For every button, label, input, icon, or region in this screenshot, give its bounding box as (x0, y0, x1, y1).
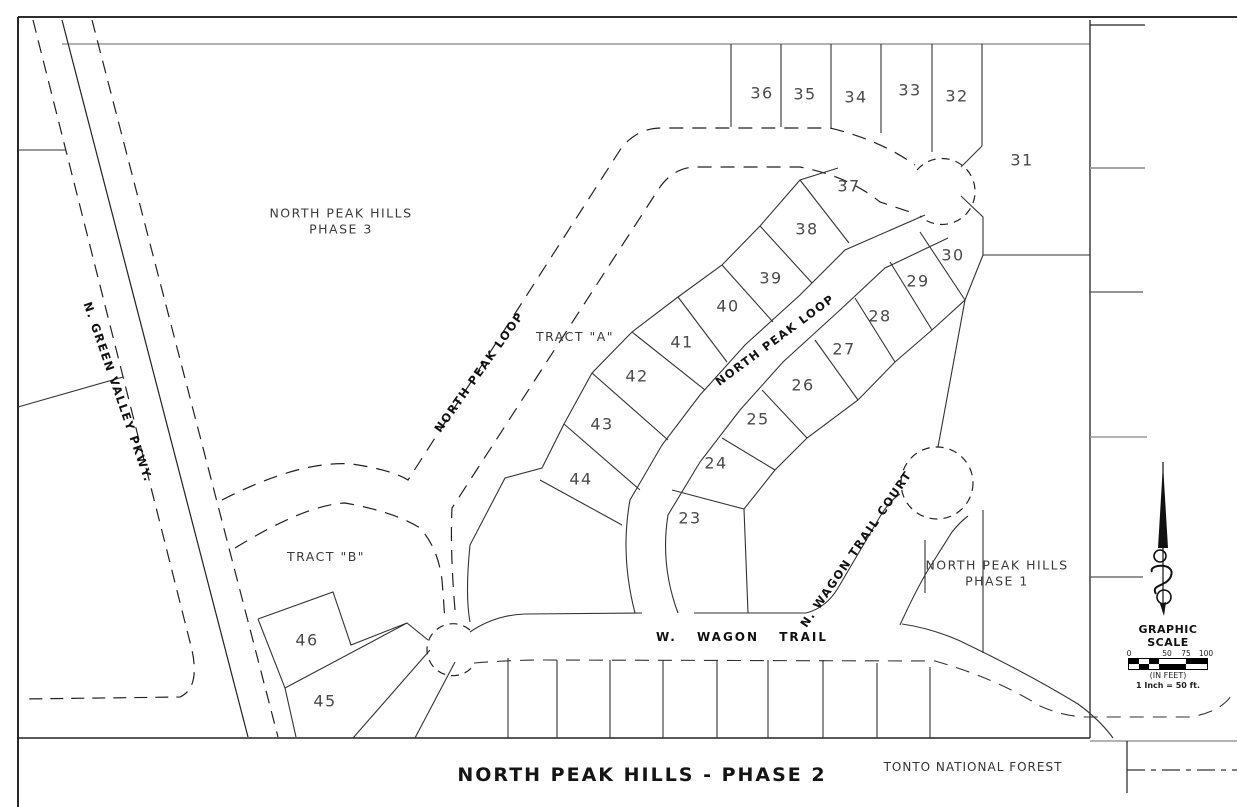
lot-37-label: 37 (837, 177, 860, 196)
scale-tick-50: 50 (1162, 649, 1172, 658)
lot-28-label: 28 (868, 307, 891, 326)
tract-a-label: TRACT "A" (536, 329, 614, 345)
north-arrow-icon (1152, 462, 1172, 616)
lot-27-label: 27 (832, 340, 855, 359)
lot-26-label: 26 (791, 376, 814, 395)
lot-33-label: 33 (898, 81, 921, 100)
lot-25-label: 25 (746, 410, 769, 429)
lot-45-label: 45 (313, 692, 336, 711)
graphic-scale-bar (1128, 658, 1208, 670)
lot-39-label: 39 (759, 269, 782, 288)
lot-36-label: 36 (750, 84, 773, 103)
phase1-label: NORTH PEAK HILLS PHASE 1 (925, 557, 1068, 588)
scale-unit-note: (IN FEET) (1126, 671, 1210, 680)
lot-40-label: 40 (716, 297, 739, 316)
lot-30-label: 30 (941, 246, 964, 265)
lot-44-label: 44 (569, 470, 592, 489)
tonto-national-forest-label: TONTO NATIONAL FOREST (884, 760, 1063, 774)
lot-43-label: 43 (590, 415, 613, 434)
lot-42-label: 42 (625, 367, 648, 386)
scale-tick-100: 100 (1199, 649, 1213, 658)
scale-tick-75: 75 (1181, 649, 1191, 658)
lot-34-label: 34 (844, 88, 867, 107)
lot-31-label: 31 (1010, 151, 1033, 170)
scale-tick-0: 0 (1127, 649, 1132, 658)
lot-35-label: 35 (793, 85, 816, 104)
graphic-scale-heading: GRAPHIC SCALE (1126, 623, 1210, 649)
lot-23-label: 23 (678, 509, 701, 528)
scale-ratio-note: 1 Inch = 50 ft. (1126, 681, 1210, 690)
lot-41-label: 41 (670, 333, 693, 352)
graphic-scale: GRAPHIC SCALE 0 50 75 100 (IN FEET) 1 In… (1126, 623, 1210, 690)
lot-46-label: 46 (295, 631, 318, 650)
phase3-label: NORTH PEAK HILLS PHASE 3 (269, 205, 412, 236)
sheet-title: NORTH PEAK HILLS - PHASE 2 (457, 764, 826, 786)
tract-b-label: TRACT "B" (287, 549, 365, 565)
lot-24-label: 24 (704, 454, 727, 473)
plat-linework (0, 0, 1238, 807)
lot-29-label: 29 (906, 272, 929, 291)
graphic-scale-ticks: 0 50 75 100 (1126, 649, 1210, 658)
lot-38-label: 38 (795, 220, 818, 239)
wagon-trail-label: W. WAGON TRAIL (656, 630, 828, 644)
plat-map: NORTH PEAK HILLS PHASE 3 NORTH PEAK HILL… (0, 0, 1238, 807)
lot-32-label: 32 (945, 87, 968, 106)
